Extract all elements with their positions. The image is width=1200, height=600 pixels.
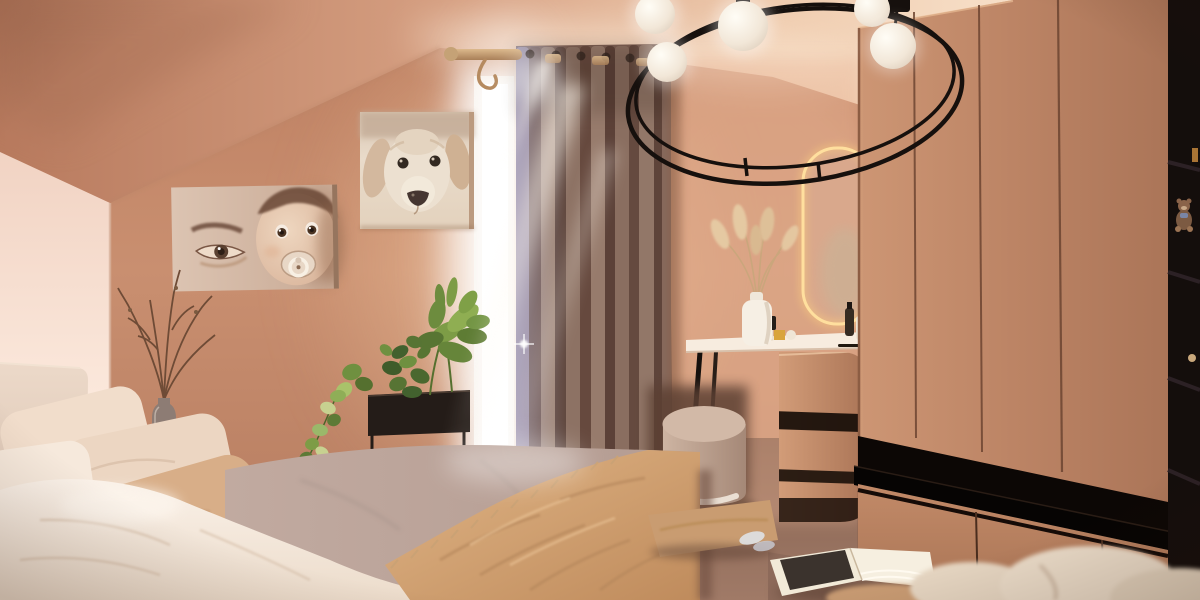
bedroom-render xyxy=(0,0,1200,600)
vignette xyxy=(0,0,1200,600)
